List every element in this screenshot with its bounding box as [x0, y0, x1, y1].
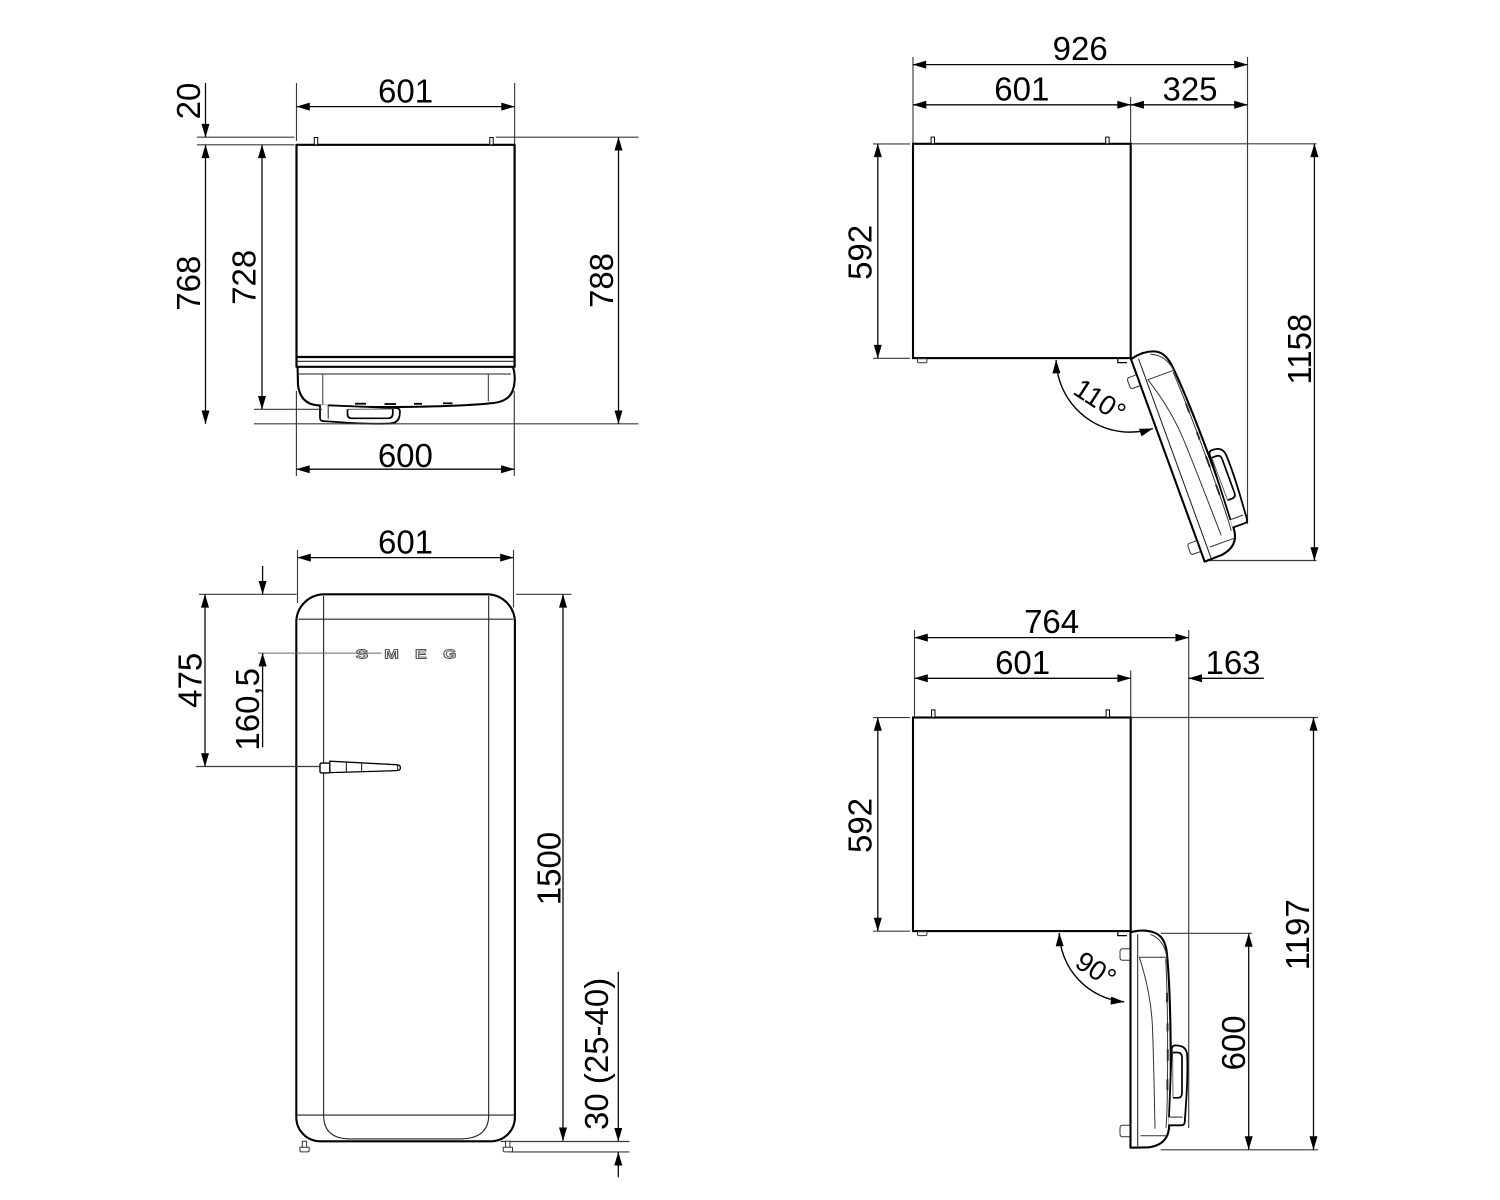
svg-text:30 (25-40): 30 (25-40) — [578, 978, 615, 1130]
svg-text:600: 600 — [1215, 1015, 1252, 1070]
svg-text:G: G — [443, 647, 456, 662]
svg-text:601: 601 — [995, 644, 1050, 681]
svg-text:600: 600 — [378, 437, 433, 474]
svg-text:160,5: 160,5 — [229, 668, 266, 751]
svg-text:592: 592 — [842, 798, 879, 853]
svg-text:601: 601 — [994, 71, 1049, 108]
svg-text:601: 601 — [378, 523, 433, 560]
svg-text:926: 926 — [1053, 30, 1108, 67]
svg-text:728: 728 — [226, 250, 263, 305]
svg-text:1158: 1158 — [1281, 314, 1318, 385]
svg-text:1197: 1197 — [1279, 899, 1316, 970]
svg-text:601: 601 — [378, 72, 433, 109]
svg-text:325: 325 — [1162, 71, 1217, 108]
svg-text:S: S — [356, 647, 369, 661]
svg-text:M: M — [384, 647, 399, 661]
svg-text:764: 764 — [1024, 603, 1079, 640]
svg-text:20: 20 — [170, 83, 207, 120]
svg-text:592: 592 — [842, 225, 879, 280]
svg-text:788: 788 — [583, 253, 620, 308]
svg-text:1500: 1500 — [531, 832, 568, 905]
svg-text:E: E — [415, 647, 427, 661]
svg-text:163: 163 — [1205, 644, 1260, 681]
svg-text:768: 768 — [170, 256, 207, 311]
svg-text:475: 475 — [172, 653, 209, 708]
